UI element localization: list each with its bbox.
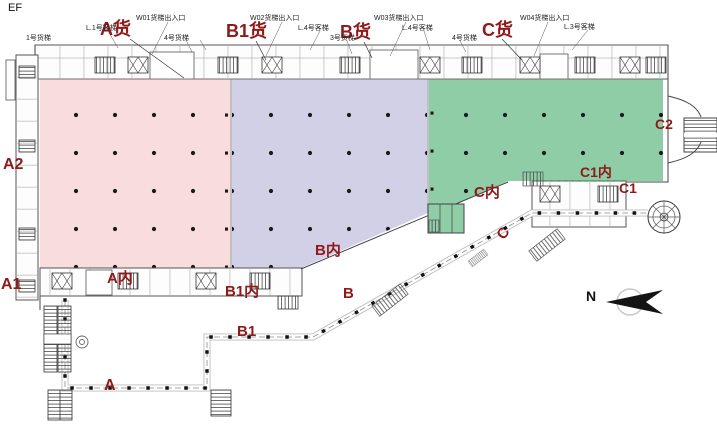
label-a1-entrance: A1 <box>1 277 21 293</box>
ramp-c-small <box>468 249 488 267</box>
top-service-band <box>35 45 668 79</box>
stair-b1-inner <box>278 296 298 309</box>
label-b1-freight-entrance: B1货 <box>226 22 267 40</box>
label-b1-walkway: B1 <box>237 324 256 339</box>
c1-inner-block <box>532 181 626 227</box>
label-a-walkway: A <box>104 378 116 394</box>
annotation-w02-cargo-lift-door: W02货梯出入口 <box>250 15 299 22</box>
label-b-inner-entrance: B内 <box>315 243 341 258</box>
corner-mark: EF <box>8 2 22 14</box>
annotation-cargo-lift-4a: 4号货梯 <box>164 35 189 42</box>
floor-plan-canvas: EF A货 B1货 B货 C货 A2 A1 A内 B1内 B内 B B1 A C… <box>0 0 717 425</box>
annotation-w04-cargo-lift-door: W04货梯出入口 <box>520 15 569 22</box>
c-inner-rooms <box>428 204 464 233</box>
annotation-w01-cargo-lift-door: W01货梯出入口 <box>136 15 185 22</box>
annotation-cargo-lift-4b: 4号货梯 <box>452 35 477 42</box>
left-service-band <box>6 55 38 300</box>
annotation-passenger-lift-4b: L.4号客梯 <box>402 25 433 32</box>
ramp-c <box>529 229 565 261</box>
annotation-cargo-lift-3: 3号货梯 <box>330 35 355 42</box>
label-c-freight-entrance: C货 <box>482 21 513 39</box>
zone-b1-hall <box>231 79 428 268</box>
label-b-walkway: B <box>343 286 354 301</box>
stair-bottom <box>211 390 231 416</box>
north-arrow <box>606 289 663 315</box>
label-c1-entrance: C1 <box>619 181 637 195</box>
annotation-cargo-lift-1: 1号货梯 <box>26 35 51 42</box>
label-c2-entrance: C2 <box>655 117 673 131</box>
stair-c1 <box>523 172 543 186</box>
c1-rotunda <box>648 201 680 233</box>
label-a2-entrance: A2 <box>3 157 23 173</box>
annotation-passenger-lift-3: L.3号客梯 <box>564 24 595 31</box>
label-c-inner-entrance: C内 <box>474 185 500 200</box>
c2-bridge <box>668 96 717 163</box>
floor-plan-drawing <box>0 0 717 425</box>
label-b1-inner-entrance: B1内 <box>225 284 259 299</box>
west-escalators <box>44 306 88 420</box>
annotation-passenger-lift-1: L.1号客梯 <box>86 25 117 32</box>
label-c1-inner-entrance: C1内 <box>580 165 612 179</box>
annotation-passenger-lift-4a: L.4号客梯 <box>298 25 329 32</box>
north-label: N <box>586 289 596 303</box>
inner-room-band <box>40 268 302 309</box>
annotation-w03-cargo-lift-door: W03货梯出入口 <box>374 15 423 22</box>
label-a-inner-entrance: A内 <box>107 271 133 286</box>
zone-a-hall <box>40 79 231 268</box>
